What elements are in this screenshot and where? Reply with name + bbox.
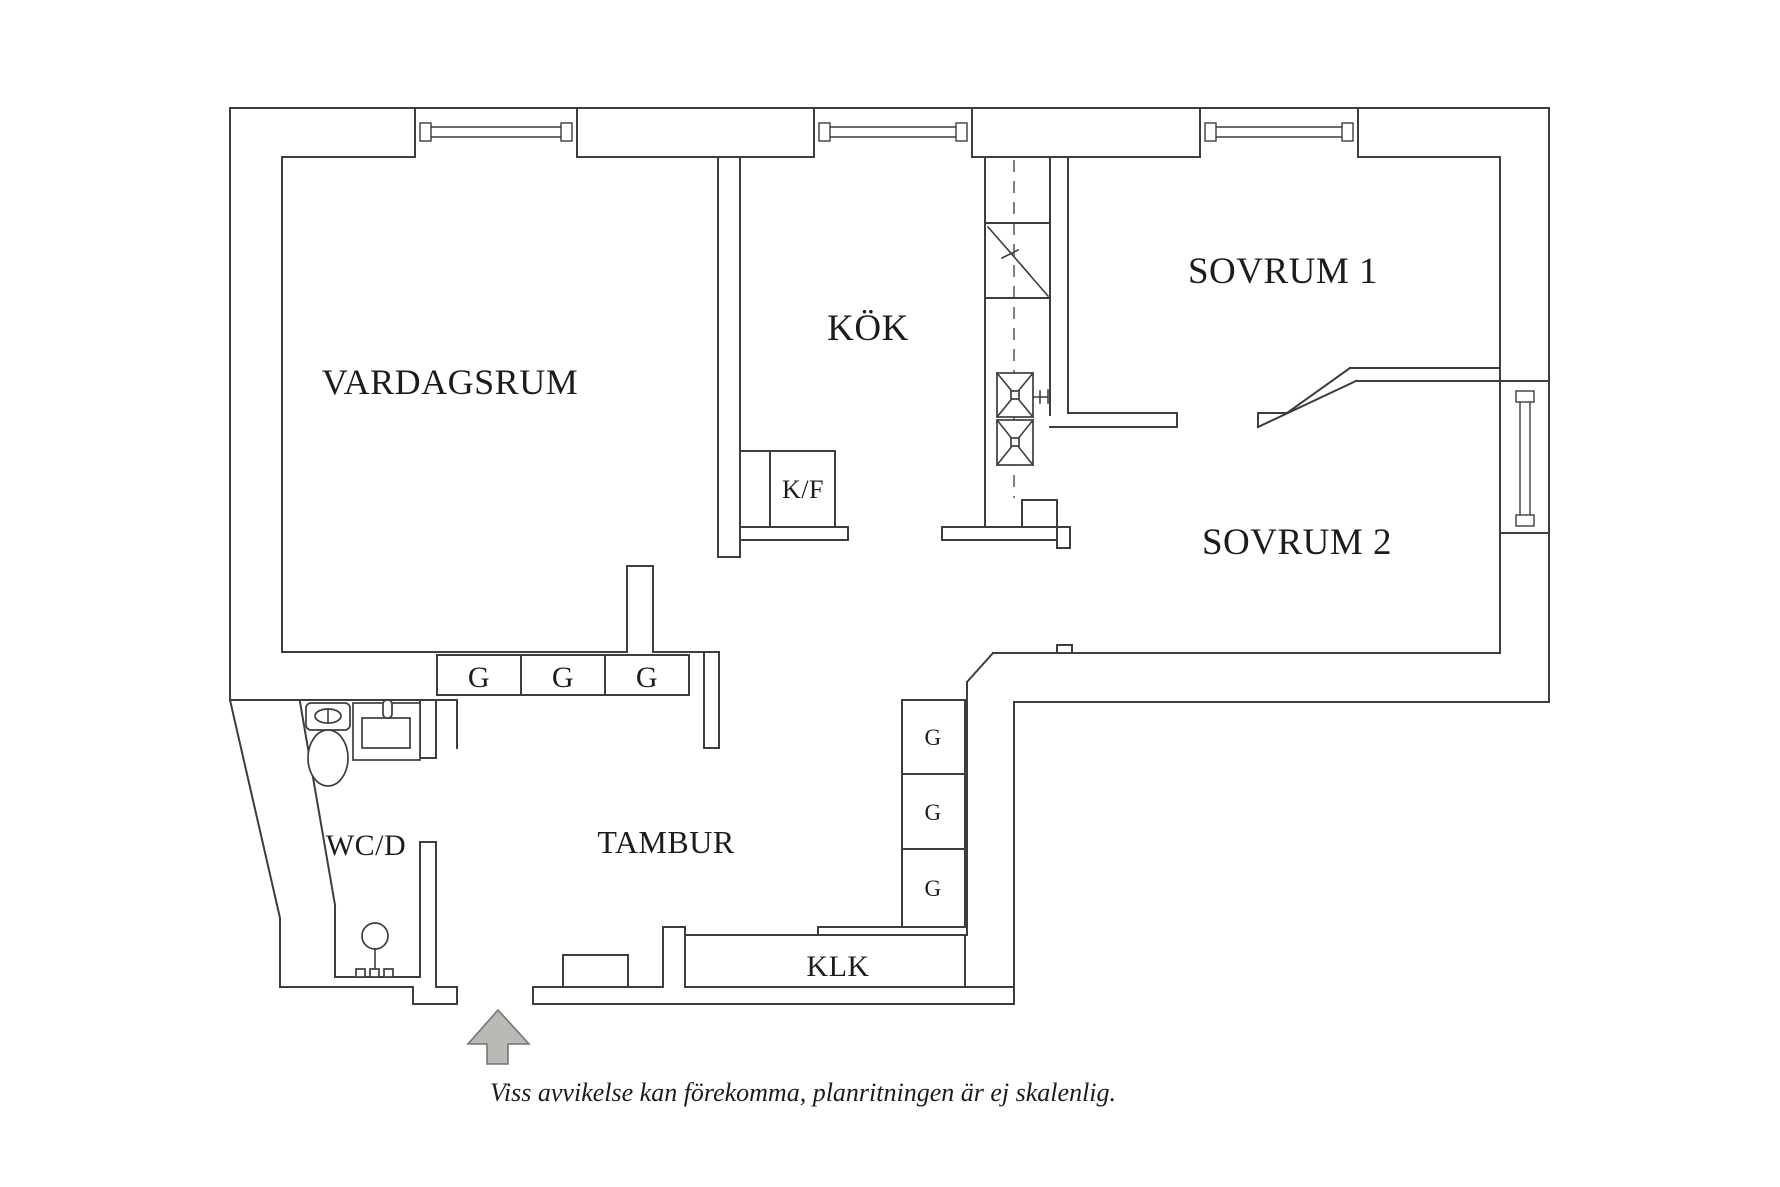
wardrobe-label: G: [924, 725, 941, 750]
bathroom-sink-icon: [353, 700, 420, 760]
room-label-sovrum2: SOVRUM 2: [1202, 522, 1392, 563]
floor-plan-page: G G G G G G VARDAGSRUM KÖK SOVRUM 1 SOVR…: [0, 0, 1780, 1187]
counter-strip-walls: [985, 157, 1057, 527]
room-label-vardagsrum: VARDAGSRUM: [322, 362, 578, 402]
window-icon-vardagsrum: [420, 123, 572, 141]
wardrobe-column: G G G: [902, 700, 965, 927]
window-icon-kok: [819, 123, 967, 141]
inner-top-walls: [282, 108, 1500, 157]
floor-plan-canvas: G G G G G G VARDAGSRUM KÖK SOVRUM 1 SOVR…: [0, 0, 1780, 1187]
shower-icon: [356, 923, 393, 977]
entrance-arrow-icon: [468, 1010, 529, 1064]
kitchen-sink-icon: [997, 373, 1048, 465]
room-label-sovrum1: SOVRUM 1: [1188, 251, 1378, 292]
wardrobe-label: G: [636, 661, 658, 694]
wardrobe-row: G G G: [437, 655, 689, 695]
room-label-klk: KLK: [806, 950, 869, 983]
toilet-icon: [306, 703, 350, 786]
cabinet-door-icon: [988, 227, 1048, 296]
wardrobe-label: G: [924, 800, 941, 825]
wardrobe-label: G: [468, 661, 490, 694]
wall-step: [1057, 527, 1070, 548]
appliance-label-kf: K/F: [782, 475, 824, 504]
faucet-icon: [1033, 390, 1048, 403]
room-label-tambur: TAMBUR: [597, 824, 735, 860]
doormat: [563, 955, 628, 987]
disclaimer-text: Viss avvikelse kan förekomma, planritnin…: [490, 1078, 1116, 1107]
window-icon-sovrum2: [1516, 391, 1534, 526]
window-icon-sovrum1: [1205, 123, 1353, 141]
room-label-wcd: WC/D: [326, 829, 406, 862]
wardrobe-label: G: [924, 876, 941, 901]
room-label-kok: KÖK: [827, 308, 909, 349]
wardrobe-label: G: [552, 661, 574, 694]
bottom-walls: [436, 927, 1014, 1004]
